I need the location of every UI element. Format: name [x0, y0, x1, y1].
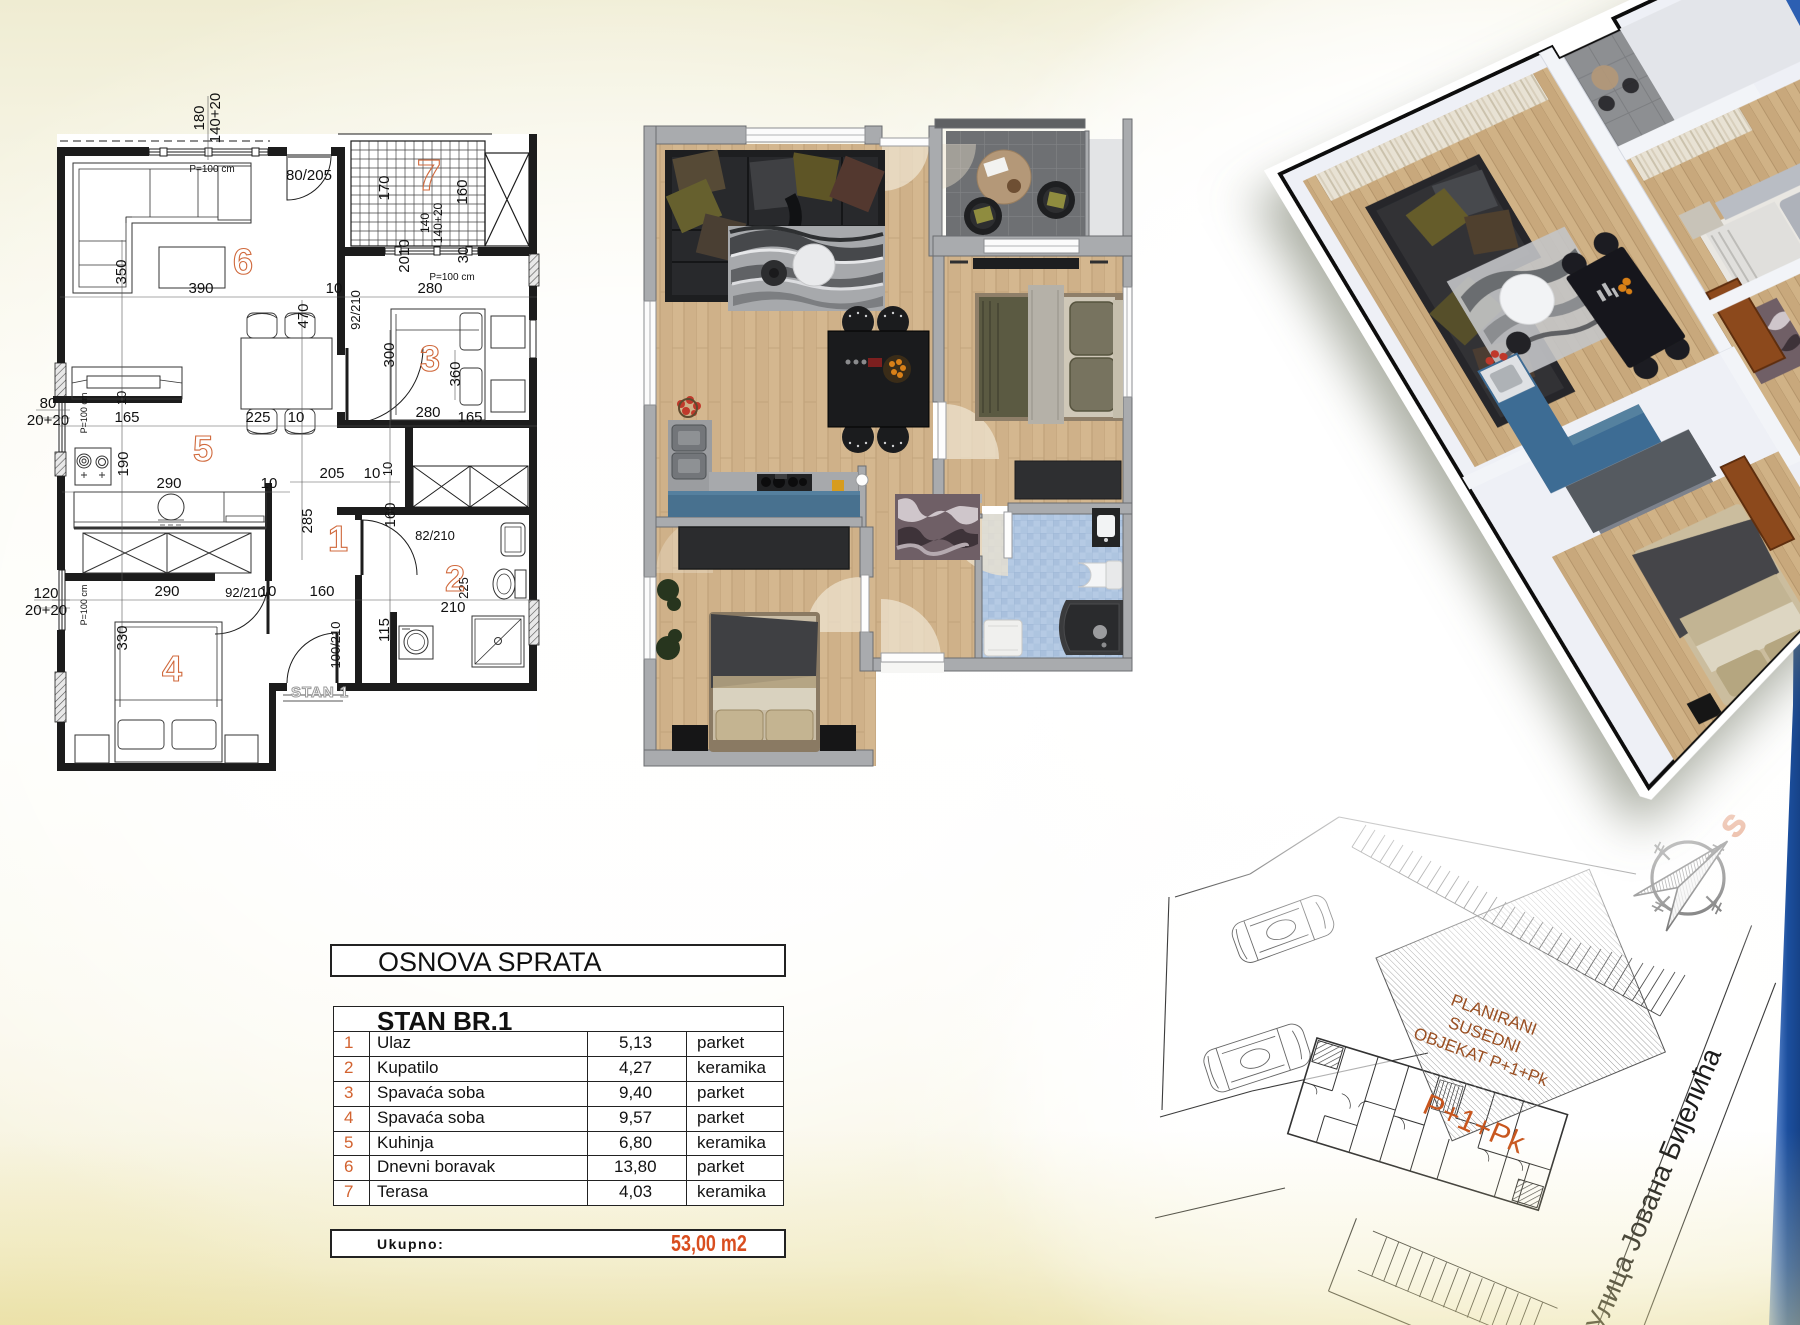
svg-text:180: 180 [191, 105, 208, 130]
svg-text:5: 5 [193, 428, 213, 469]
svg-text:390: 390 [188, 280, 213, 297]
svg-text:2010: 2010 [396, 239, 413, 272]
svg-text:160: 160 [382, 502, 399, 527]
svg-text:160: 160 [454, 179, 471, 204]
svg-text:165: 165 [457, 409, 482, 426]
svg-text:210: 210 [440, 599, 465, 616]
svg-text:20+20: 20+20 [27, 412, 69, 429]
svg-text:120: 120 [33, 585, 58, 602]
svg-text:STAN 1: STAN 1 [291, 684, 349, 701]
svg-text:3: 3 [420, 338, 440, 379]
svg-text:10: 10 [326, 280, 343, 297]
svg-text:300: 300 [381, 342, 398, 367]
svg-text:10: 10 [380, 462, 395, 476]
svg-text:30: 30 [455, 247, 472, 264]
svg-text:92/210: 92/210 [225, 585, 265, 600]
svg-text:92/210: 92/210 [348, 290, 363, 330]
svg-text:190: 190 [115, 451, 132, 476]
svg-text:285: 285 [299, 508, 316, 533]
svg-text:80/205: 80/205 [286, 167, 332, 184]
svg-text:80: 80 [40, 395, 57, 412]
svg-text:290: 290 [154, 583, 179, 600]
svg-text:280: 280 [415, 404, 440, 421]
svg-text:140+20: 140+20 [207, 93, 224, 143]
svg-text:470: 470 [295, 303, 312, 328]
svg-text:225: 225 [245, 409, 270, 426]
svg-text:6: 6 [233, 241, 253, 282]
svg-text:350: 350 [113, 259, 130, 284]
svg-text:82/210: 82/210 [415, 528, 455, 543]
svg-text:170: 170 [376, 175, 393, 200]
svg-text:2: 2 [445, 558, 465, 599]
svg-text:290: 290 [156, 475, 181, 492]
svg-text:100/210: 100/210 [328, 622, 343, 669]
svg-text:115: 115 [376, 618, 393, 642]
svg-text:P=100 cm: P=100 cm [429, 272, 474, 283]
svg-text:330: 330 [114, 625, 131, 650]
svg-text:1: 1 [328, 518, 348, 559]
svg-text:205: 205 [319, 465, 344, 482]
svg-text:P=100 cm: P=100 cm [189, 164, 234, 175]
svg-text:7: 7 [417, 151, 441, 200]
svg-text:10: 10 [288, 409, 305, 426]
svg-text:P=100 cm: P=100 cm [79, 393, 89, 434]
svg-text:4: 4 [162, 648, 182, 689]
svg-text:10: 10 [114, 391, 129, 405]
svg-text:10: 10 [261, 475, 278, 492]
svg-text:165: 165 [114, 409, 139, 426]
svg-text:140: 140 [418, 213, 432, 233]
svg-text:360: 360 [447, 361, 464, 386]
svg-text:140+20: 140+20 [431, 202, 445, 243]
svg-text:20+20: 20+20 [25, 602, 67, 619]
svg-text:P=100 cm: P=100 cm [79, 585, 89, 626]
svg-text:160: 160 [309, 583, 334, 600]
svg-text:10: 10 [364, 465, 381, 482]
